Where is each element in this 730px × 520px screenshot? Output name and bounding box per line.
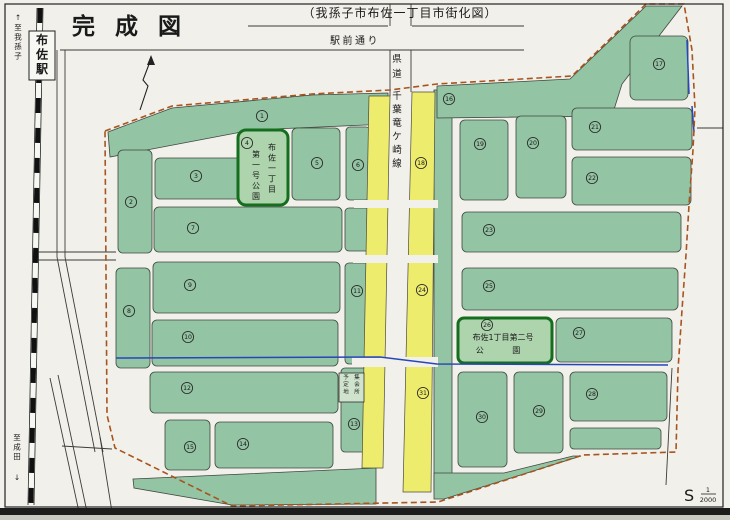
block-number-30: 30: [478, 414, 486, 421]
scanned-map-page: 集会所 予定地 布佐駅 ↑ 至我孫子 至成田 ↓ 完成図 （我孫子市布佐一丁目市…: [0, 0, 730, 520]
block-number-15: 15: [186, 444, 194, 451]
block-number-7: 7: [191, 225, 195, 232]
street-crossing: [354, 200, 438, 208]
block-number-31: 31: [419, 390, 427, 397]
block-8-shape: [116, 268, 150, 368]
block-number-1: 1: [260, 113, 264, 120]
block-number-29: 29: [535, 408, 543, 415]
block-number-25: 25: [485, 283, 493, 290]
block-12-shape: [150, 372, 338, 413]
block-19-shape: [460, 120, 508, 200]
block-14-shape: [215, 422, 333, 468]
scale-prefix: S: [684, 486, 694, 505]
park-1-name-right: 布佐一丁目: [268, 142, 276, 194]
ekimae-street-label: 駅前通り: [330, 34, 380, 47]
block-number-2: 2: [129, 199, 133, 206]
block-number-19: 19: [476, 141, 484, 148]
street-crossing: [353, 255, 438, 263]
block-number-27: 27: [575, 330, 583, 337]
to-narita-arrow: ↓: [14, 473, 20, 482]
block-7-shape: [154, 207, 342, 252]
block-27-shape: [556, 318, 672, 362]
block-number-6: 6: [356, 162, 360, 169]
map-caption: （我孫子市布佐一丁目市街化図）: [302, 5, 497, 20]
block-number-21: 21: [591, 124, 599, 131]
scan-edge-shadow: [0, 515, 730, 520]
block-9-shape: [153, 262, 340, 313]
block-number-22: 22: [588, 175, 596, 182]
to-abiko-label: 至我孫子: [14, 23, 22, 61]
block-number-9: 9: [188, 282, 192, 289]
station-label: 布佐駅: [35, 32, 49, 76]
block-number-3: 3: [194, 173, 198, 180]
block-number-17: 17: [655, 61, 663, 68]
block-number-11: 11: [353, 288, 361, 295]
block-number-12: 12: [183, 385, 191, 392]
park-1-name-left: 第一号公園: [252, 149, 260, 201]
block-number-8: 8: [127, 308, 131, 315]
block-3-shape: [155, 158, 242, 199]
roadside-strip-east: [434, 90, 452, 490]
map-svg: 集会所 予定地 布佐駅 ↑ 至我孫子 至成田 ↓ 完成図 （我孫子市布佐一丁目市…: [0, 0, 730, 520]
block-number-16: 16: [445, 96, 453, 103]
block-25-shape: [462, 268, 678, 310]
block-number-20: 20: [529, 140, 537, 147]
block-number-14: 14: [239, 441, 247, 448]
hall-label-left: 予定地: [343, 373, 349, 395]
block-number-4: 4: [245, 140, 249, 147]
block-number-28: 28: [588, 391, 596, 398]
block-number-24: 24: [418, 287, 426, 294]
block-number-18: 18: [417, 160, 425, 167]
block-number-23: 23: [485, 227, 493, 234]
park-2-name-line1: 布佐1丁目第二号: [472, 332, 533, 342]
page-title: 完成図: [72, 13, 201, 40]
block-number-5: 5: [315, 160, 319, 167]
block-28-shape: [570, 372, 667, 421]
scale-denominator: 2000: [700, 496, 717, 504]
hall-label-right: 集会所: [354, 373, 360, 395]
community-hall-site: 集会所 予定地: [339, 373, 364, 402]
park-2-name-line2: 公 園: [476, 346, 521, 355]
block-10-shape: [152, 320, 338, 366]
block-20-shape: [516, 116, 566, 198]
to-abiko-arrow: ↑: [15, 13, 21, 22]
block-below-28-shape: [570, 428, 661, 449]
block-23-shape: [462, 212, 681, 252]
block-number-13: 13: [350, 421, 358, 428]
scan-edge-bar: [0, 508, 730, 515]
block-number-10: 10: [184, 334, 192, 341]
block-2-shape: [118, 150, 152, 253]
block-number-26: 26: [483, 322, 491, 329]
to-narita-label: 至成田: [13, 433, 21, 461]
scale-numerator: 1: [706, 486, 710, 494]
